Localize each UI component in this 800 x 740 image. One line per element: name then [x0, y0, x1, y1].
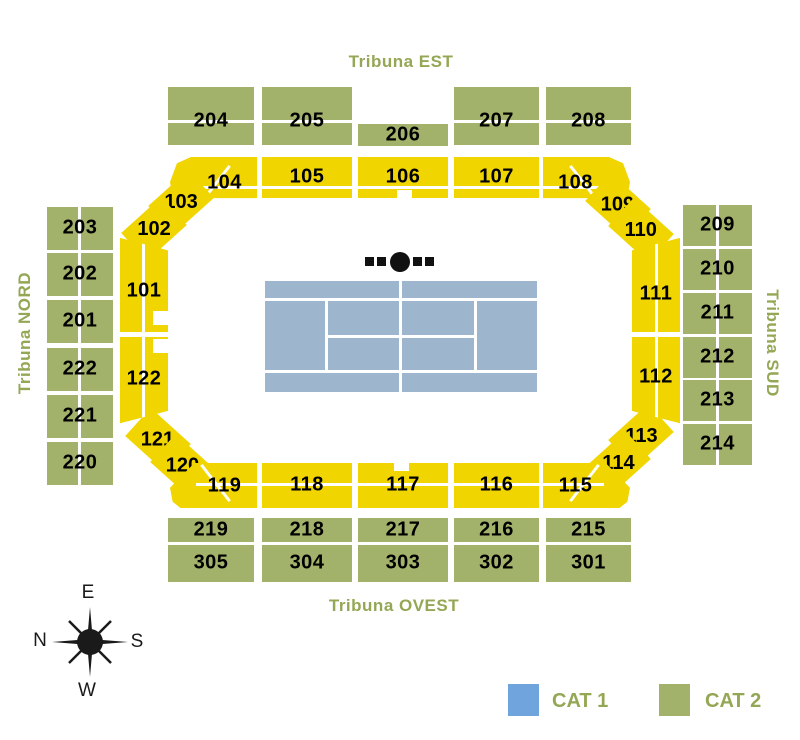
section-118[interactable]: 118: [262, 463, 352, 508]
section-304[interactable]: 304: [262, 545, 352, 582]
section-222[interactable]: 222: [47, 348, 113, 391]
section-122[interactable]: 122: [120, 337, 168, 425]
section-105[interactable]: 105: [262, 157, 352, 198]
section-219[interactable]: 219: [168, 518, 254, 542]
stand-label-nord: Tribuna NORD: [15, 243, 35, 423]
section-302[interactable]: 302: [454, 545, 539, 582]
court-center-service-line: [325, 335, 477, 338]
court-bottom-tramline: [265, 370, 537, 373]
legend-cat1-swatch: [508, 684, 539, 716]
stadium-seating-map: Tribuna EST Tribuna NORD Tribuna SUD Tri…: [0, 0, 800, 740]
section-207[interactable]: 207: [454, 87, 539, 145]
court-top-tramline: [265, 298, 537, 301]
compass-south-label: S: [125, 630, 149, 654]
section-204[interactable]: 204: [168, 87, 254, 145]
section-117[interactable]: 117: [358, 463, 448, 508]
section-303[interactable]: 303: [358, 545, 448, 582]
section-202[interactable]: 202: [47, 253, 113, 296]
section-101[interactable]: 101: [120, 236, 168, 332]
section-205[interactable]: 205: [262, 87, 352, 145]
stand-label-est: Tribuna EST: [301, 52, 501, 72]
section-213[interactable]: 213: [683, 380, 752, 421]
section-215[interactable]: 215: [546, 518, 631, 542]
section-116[interactable]: 116: [454, 463, 539, 508]
stand-label-sud: Tribuna SUD: [762, 263, 782, 423]
section-217[interactable]: 217: [358, 518, 448, 542]
section-214[interactable]: 214: [683, 424, 752, 465]
legend-cat1-label: CAT 1: [552, 690, 608, 713]
compass-west-label: W: [75, 679, 99, 703]
section-221[interactable]: 221: [47, 395, 113, 438]
section-111[interactable]: 111: [632, 236, 680, 332]
section-106[interactable]: 106: [358, 157, 448, 198]
section-301[interactable]: 301: [546, 545, 631, 582]
section-220[interactable]: 220: [47, 442, 113, 485]
section-112[interactable]: 112: [632, 337, 680, 425]
legend-cat2-label: CAT 2: [705, 690, 761, 713]
section-211[interactable]: 211: [683, 293, 752, 334]
compass-north-label: N: [28, 629, 52, 653]
tennis-court: [265, 281, 537, 392]
section-201[interactable]: 201: [47, 300, 113, 343]
section-210[interactable]: 210: [683, 249, 752, 290]
section-206[interactable]: 206: [358, 124, 448, 146]
section-209[interactable]: 209: [683, 205, 752, 246]
section-107[interactable]: 107: [454, 157, 539, 198]
stand-label-ovest: Tribuna OVEST: [294, 596, 494, 616]
section-212[interactable]: 212: [683, 337, 752, 378]
section-305[interactable]: 305: [168, 545, 254, 582]
section-218[interactable]: 218: [262, 518, 352, 542]
compass-east-label: E: [76, 581, 100, 605]
section-208[interactable]: 208: [546, 87, 631, 145]
section-216[interactable]: 216: [454, 518, 539, 542]
section-203[interactable]: 203: [47, 207, 113, 250]
legend-cat2-swatch: [659, 684, 690, 716]
